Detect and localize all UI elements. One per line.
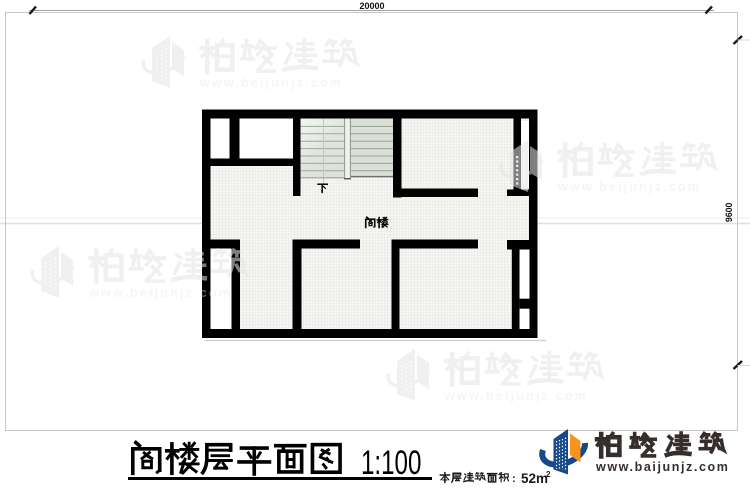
svg-text::: : — [512, 473, 516, 485]
svg-text:9600: 9600 — [724, 203, 734, 223]
svg-text:1:100: 1:100 — [361, 444, 421, 482]
svg-text:20000: 20000 — [359, 1, 384, 11]
svg-text:2: 2 — [546, 470, 551, 479]
svg-text:www.baijunjz.com: www.baijunjz.com — [595, 460, 729, 474]
svg-text:52m: 52m — [521, 471, 548, 486]
